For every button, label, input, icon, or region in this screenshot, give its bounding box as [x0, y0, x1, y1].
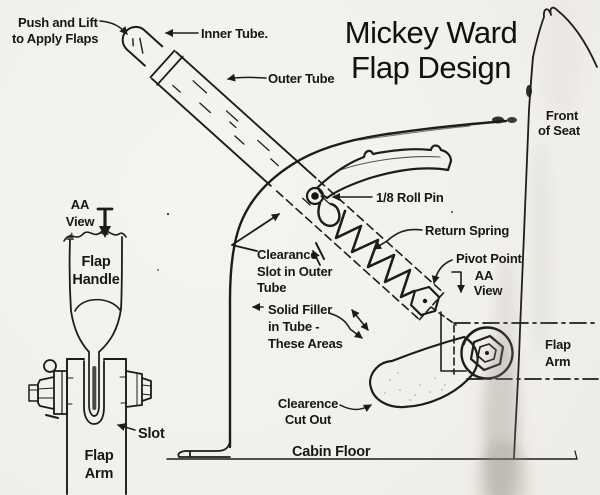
label-front-of-seat-2: of Seat	[538, 123, 581, 138]
label-filler-3: These Areas	[268, 336, 343, 351]
outer-tube-leader	[228, 77, 266, 79]
cutout-leader	[340, 405, 371, 410]
push-lift-leader	[100, 21, 127, 34]
label-flap-arm-right-1: Flap	[545, 337, 571, 352]
label-flap-handle-2: Handle	[72, 272, 119, 288]
label-clearance-1: Clearance	[257, 247, 317, 262]
return-spring-leader	[374, 230, 422, 249]
inner-tube-knob	[117, 22, 162, 66]
aa-view-right-arrow	[452, 272, 461, 292]
safety-ring	[44, 360, 56, 372]
label-flap-arm-right-2: Arm	[545, 354, 570, 369]
label-inner-tube: Inner Tube.	[201, 26, 268, 41]
label-cabin-floor: Cabin Floor	[292, 444, 371, 460]
floor-foot-bracket	[178, 442, 230, 457]
label-flap-arm-left-1: Flap	[84, 448, 113, 464]
label-roll-pin: 1/8 Roll Pin	[376, 190, 444, 205]
slot-gap-shadow	[92, 366, 96, 410]
label-flap-arm-left-2: Arm	[85, 466, 113, 482]
page-title-line1: Mickey Ward	[345, 15, 517, 50]
label-push-lift-2: to Apply Flaps	[12, 31, 98, 46]
label-clearance-3: Tube	[257, 280, 286, 295]
label-filler-2: in Tube -	[268, 319, 319, 334]
label-aa-left-2: View	[66, 214, 96, 229]
label-aa-right-1: AA	[475, 268, 494, 283]
bolt-tip-right	[126, 371, 151, 407]
page-title-line2: Flap Design	[351, 50, 511, 85]
label-flap-handle-1: Flap	[81, 254, 110, 270]
label-return-spring: Return Spring	[425, 223, 509, 238]
label-cutout-1: Clearence	[278, 396, 338, 411]
label-cutout-2: Cut Out	[285, 412, 332, 427]
diagram-drawing: Mickey Ward Flap Design Push and Lift to…	[0, 0, 600, 495]
label-outer-tube: Outer Tube	[268, 71, 334, 86]
label-clearance-2: Slot in Outer	[257, 264, 333, 279]
pivot-point-leader	[434, 260, 452, 283]
clearance-leader-a	[232, 214, 279, 251]
flap-design-diagram: Mickey Ward Flap Design Push and Lift to…	[0, 0, 600, 495]
pivot-bolt-side-view	[29, 360, 67, 418]
label-pivot-point: Pivot Point	[456, 251, 523, 266]
dimension-arrow	[352, 310, 368, 330]
label-filler-1: Solid Filler	[268, 302, 332, 317]
label-aa-left-1: AA	[71, 197, 90, 212]
label-slot: Slot	[138, 426, 165, 442]
label-push-lift-1: Push and Lift	[18, 15, 99, 30]
pivot-hex	[411, 287, 439, 315]
